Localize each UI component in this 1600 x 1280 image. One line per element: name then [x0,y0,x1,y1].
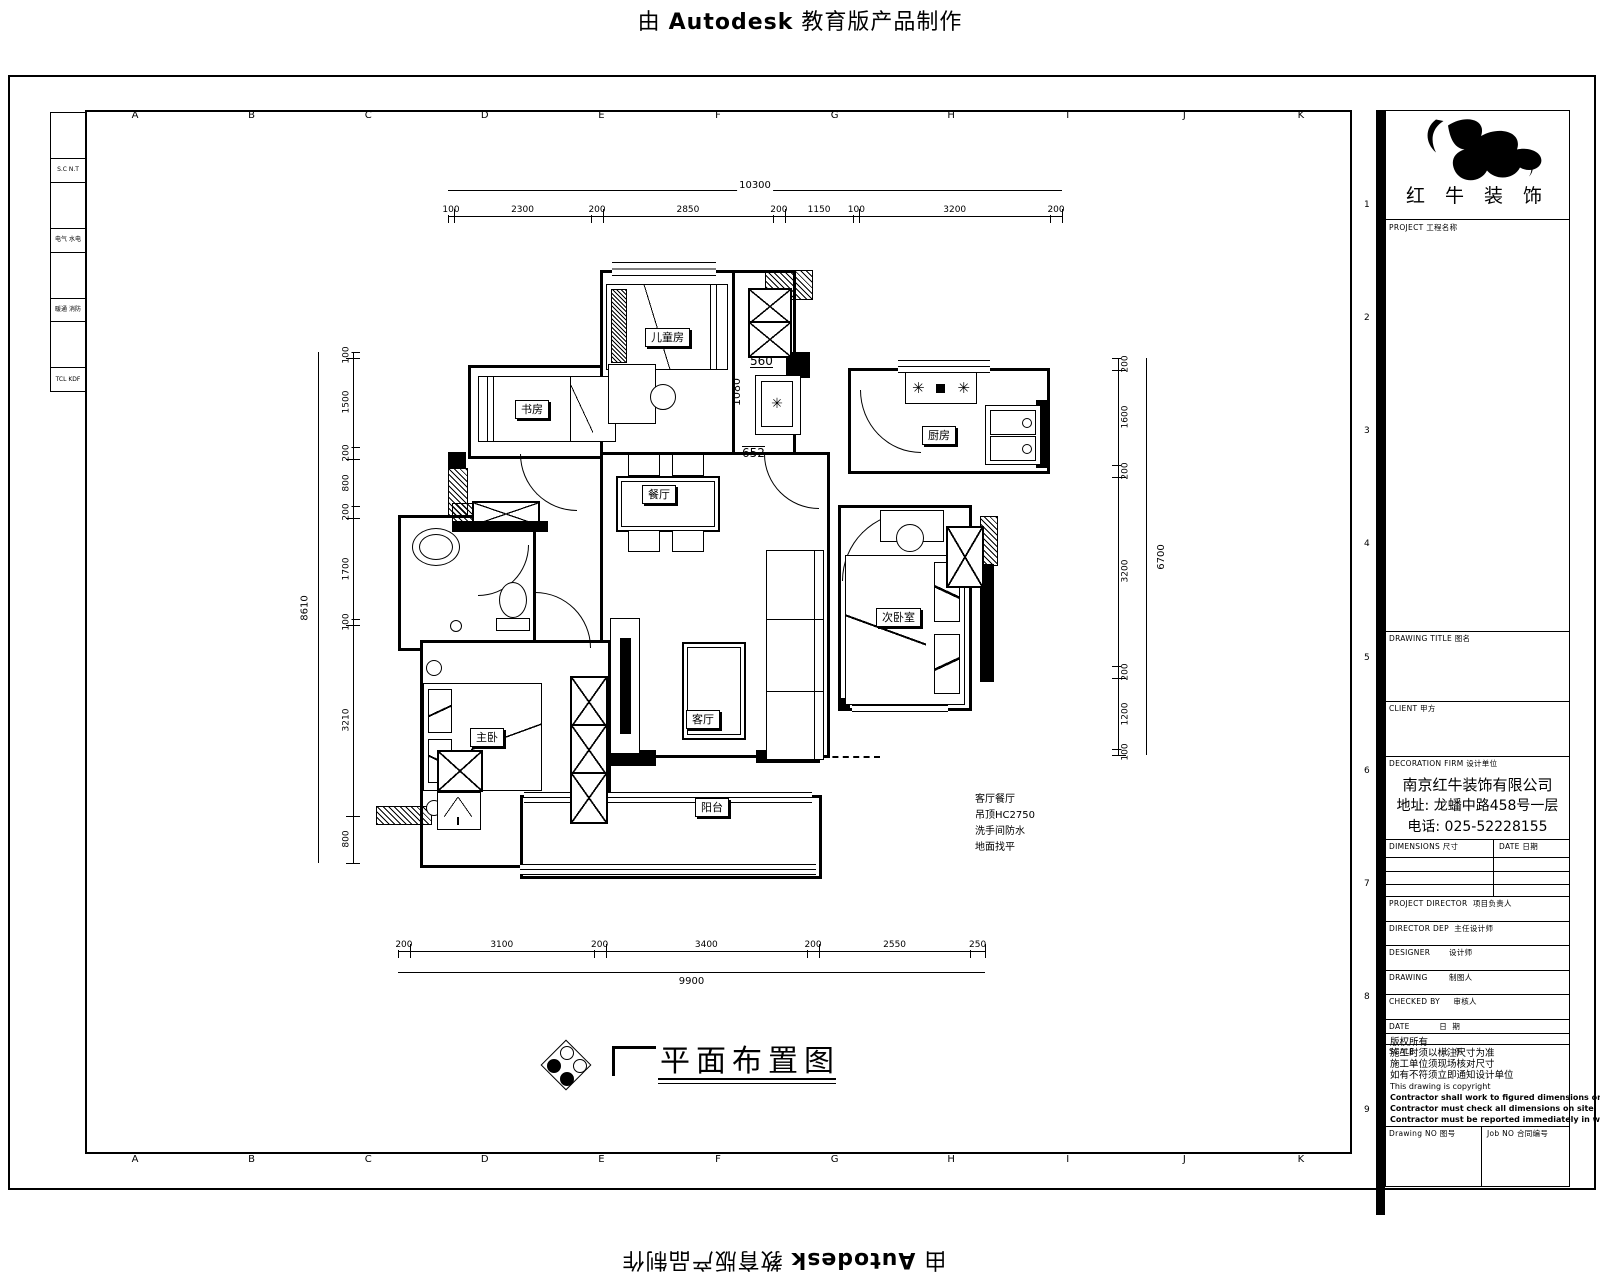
pillow [428,689,452,733]
dim-bottom-overall: 9900 [398,972,985,973]
note-line: Contractor must be reported immediately … [1386,1114,1569,1125]
dim-right-segments: 200160020032002001200100 [1118,358,1132,755]
personnel-row: DRAWING 制图人 [1386,970,1569,995]
dimensions-label: DIMENSIONS 尺寸 [1386,840,1493,853]
master-wardrobe [570,724,608,776]
grid-number: 4 [1364,539,1370,549]
wall-dashed [822,756,880,758]
grid-letter: C [361,110,375,121]
room-label-dining: 餐厅 [642,485,676,504]
mop-basin-icon [437,792,481,830]
stove-control [936,384,945,393]
grid-letter: G [828,110,842,121]
grid-letter: F [711,1154,725,1165]
note-line: 施工时须以标注尺寸为准 [1386,1048,1569,1059]
dim-top-segments: 1002300200285020011501003200200 [448,203,1062,217]
plan-note-line: 洗手间防水 [975,824,1035,840]
personnel-row: DIRECTOR DEP 主任设计师 [1386,921,1569,946]
grid-letter: E [594,1154,608,1165]
grid-letter: B [245,1154,259,1165]
wall-hatch [376,806,432,825]
grid-letter: E [594,110,608,121]
grid-number: 5 [1364,653,1370,663]
room-label-kitchen: 厨房 [922,426,956,445]
entry-cabinet: ✳ [755,375,801,435]
grid-number: 8 [1364,992,1370,1002]
grid-number: 3 [1364,426,1370,436]
revision-mini-table: S.C N.T 电气 水电 暖通 消防 TCL KDF [50,112,86,392]
children-desk [608,364,656,424]
dim-bottom-segments: 200310020034002002550250 [398,938,985,952]
dim-right-overall: 6700 [1146,358,1147,755]
room-label-living: 客厅 [686,710,720,729]
balcony-sliding-door [524,792,812,803]
room-label-balcony: 阳台 [695,798,729,817]
note-line: 施工单位须现场核对尺寸 [1386,1059,1569,1070]
drawing-no-row: Drawing NO 图号 Job NO 合同编号 [1386,1126,1569,1187]
grid-letter: G [828,1154,842,1165]
grid-number: 7 [1364,879,1370,889]
grid-letter: F [711,110,725,121]
dimensions-date-table: DIMENSIONS 尺寸 DATE 日期 [1386,839,1569,897]
firm-row: DECORATION FIRM 设计单位 南京红牛装饰有限公司 地址: 龙蟠中路… [1386,756,1569,838]
pillow [611,289,627,363]
sofa [766,550,824,760]
room-label-master: 主卧 [470,728,504,747]
title-mark [612,1046,656,1049]
plan-note-line: 地面找平 [975,840,1035,856]
stove-icon: ✳ ✳ [905,372,977,404]
personnel-row: CHECKED BY 审核人 [1386,994,1569,1019]
red-bull-logo-icon [1403,113,1553,183]
dining-chair [672,454,704,476]
grid-letter: D [478,110,492,121]
titleblock-divider-bar [1376,110,1385,1215]
dining-chair [628,530,660,552]
date-col-label: DATE 日期 [1496,840,1541,853]
watermark-top: 由 Autodesk 教育版产品制作 [638,4,963,36]
drawing-no-label: Drawing NO 图号 [1386,1127,1458,1140]
grid-letter: K [1294,1154,1308,1165]
children-chair [650,384,676,410]
grid-letter: I [1061,1154,1075,1165]
compass-icon [543,1042,589,1088]
inline-dim-560: 560 [750,355,773,368]
grid-number: 9 [1364,1105,1370,1115]
dim-left-segments: 100150020080020017001003210800 [340,352,354,863]
dim-left-overall: 8610 [318,352,319,863]
personnel-row: PROJECT DIRECTOR 项目负责人 [1386,896,1569,921]
title-underline [658,1078,836,1080]
note-line: 如有不符须立即通知设计单位 [1386,1070,1569,1081]
grid-number: 1 [1364,200,1370,210]
kitchen-sink-icon [985,405,1041,465]
grid-letter: A [128,110,142,121]
company-name: 南京红牛装饰有限公司 [1386,774,1569,796]
watermark-bottom: 由 Autodesk 教育版产品制作 [622,1246,947,1278]
washing-machine-icon [437,750,483,792]
plant-icon: ✳ [761,381,793,427]
mini-cell [51,183,85,229]
project-label: PROJECT 工程名称 [1386,221,1460,234]
mini-cell: 电气 水电 [51,229,85,253]
burner-icon: ✳ [912,379,925,397]
title-mark [612,1046,615,1076]
entry-wardrobe [748,321,792,358]
room-label-study: 书房 [515,400,549,419]
balcony-rail [520,864,816,875]
job-no-label: Job NO 合同编号 [1484,1127,1551,1140]
inline-dim-1080: 1080 [731,378,742,406]
plan-notes: 客厅餐厅吊顶HC2750洗手间防水地面找平 [975,792,1035,856]
client-label: CLIENT 甲方 [1386,702,1569,715]
company-address: 地址: 龙蟠中路458号一层 [1386,796,1569,817]
mini-cell: 暖通 消防 [51,299,85,323]
note-line: Contractor shall work to figured dimensi… [1386,1092,1569,1103]
cad-plot-page: { "watermark": {"prefix": "由 ", "brand":… [0,0,1600,1280]
dim-top-overall: 10300 [448,190,1062,191]
title-block: 红 牛 装 饰 PROJECT 工程名称 DRAWING TITLE 图名 CL… [1385,110,1570,1187]
bedroom2-chair [896,524,924,552]
wall-segment [452,521,548,532]
logo-box: 红 牛 装 饰 [1386,111,1569,220]
personnel-row: DESIGNER 设计师 [1386,945,1569,970]
grid-letter: I [1061,110,1075,121]
grid-number: 6 [1364,766,1370,776]
note-line: 版权所有 [1386,1037,1569,1048]
grid-letter: H [944,1154,958,1165]
grid-letter: A [128,1154,142,1165]
pillow [934,634,960,694]
grid-number: 2 [1364,313,1370,323]
shower-icon [450,620,462,632]
mini-cell [51,113,85,159]
note-line: Contractor must check all dimensions on … [1386,1103,1569,1114]
bedroom2-wardrobe [946,526,984,588]
drawing-title-row: DRAWING TITLE 图名 [1386,631,1569,645]
brand-name: 红 牛 装 饰 [1386,181,1569,208]
client-row: CLIENT 甲方 [1386,701,1569,715]
plan-note-line: 客厅餐厅 [975,792,1035,808]
master-wardrobe [570,772,608,824]
burner-icon: ✳ [957,379,970,397]
grid-letter: J [1177,1154,1191,1165]
drawing-title: 平面布置图 [660,1036,840,1080]
room-label-bedroom2: 次卧室 [876,608,921,627]
lamp-icon [426,660,442,676]
mini-cell: TCL KDF [51,368,85,391]
mini-cell: S.C N.T [51,159,85,183]
mini-cell [51,322,85,368]
plan-note-line: 吊顶HC2750 [975,808,1035,824]
grid-letter: K [1294,110,1308,121]
firm-label: DECORATION FIRM 设计单位 [1386,757,1569,770]
inline-dim-652: 652 [742,446,765,459]
grid-letter: J [1177,110,1191,121]
window [612,262,716,276]
grid-numbers-right: 123456789 [1364,200,1370,1115]
title-underline [658,1083,836,1084]
room-label-children: 儿童房 [645,328,690,347]
drawing-title-label: DRAWING TITLE 图名 [1386,632,1569,645]
copyright-notes: 版权所有 施工时须以标注尺寸为准 施工单位须现场核对尺寸 如有不符须立即通知设计… [1386,1033,1569,1130]
grid-letter: C [361,1154,375,1165]
children-bed [606,284,728,370]
grid-letter: B [245,110,259,121]
grid-letters-bottom: ABCDEFGHIJK [128,1154,1308,1165]
bath-basin-icon [412,528,460,566]
mini-cell [51,253,85,299]
company-phone: 电话: 025-52228155 [1386,817,1569,838]
grid-letter: D [478,1154,492,1165]
note-line: This drawing is copyright [1386,1081,1569,1092]
grid-letters-top: ABCDEFGHIJK [128,110,1308,121]
master-wardrobe [570,676,608,728]
grid-letter: H [944,110,958,121]
wall-segment [448,452,466,468]
entry-wardrobe [748,288,792,325]
dining-chair [628,454,660,476]
dining-chair [672,530,704,552]
tv-icon [620,638,631,734]
toilet-icon [496,582,530,632]
